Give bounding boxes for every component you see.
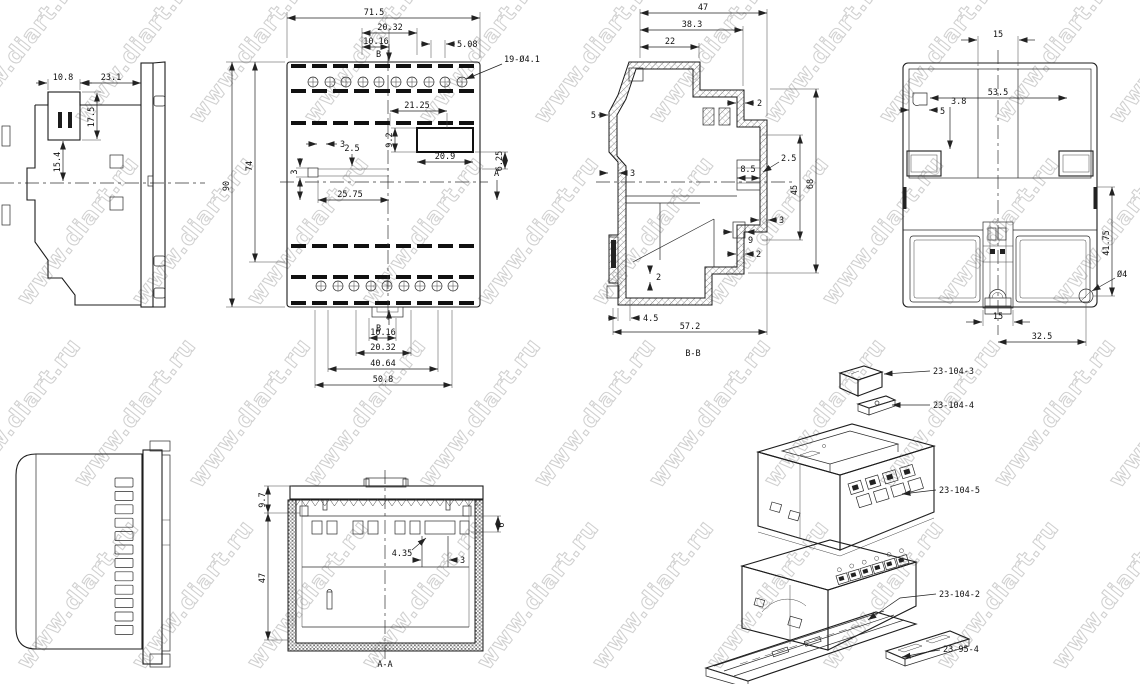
watermark-text: www.diart.ru: [874, 334, 1006, 493]
watermark-text: www.diart.ru: [357, 152, 489, 311]
dim-label: 68: [806, 179, 816, 189]
watermark-text: www.diart.ru: [127, 152, 259, 311]
watermark-text: www.diart.ru: [472, 516, 604, 675]
hole-callout: Ø4: [1117, 269, 1127, 280]
dim-label: 17.5: [87, 107, 97, 127]
watermark-layer: www.diart.ruwww.diart.ruwww.diart.ruwww.…: [0, 0, 1140, 675]
dim-label: 2: [756, 250, 761, 260]
section-label-bb: B-B: [685, 349, 700, 359]
dim-label: 5.08: [457, 40, 477, 50]
part-callout: 23-104-2: [939, 590, 980, 600]
watermark-text: www.diart.ru: [587, 516, 719, 675]
engineering-drawing: www.diart.ruwww.diart.ruwww.diart.ruwww.…: [0, 0, 1140, 684]
display-window: [417, 128, 473, 152]
dim-label: 40.64: [370, 359, 396, 369]
dim-label: 4.35: [392, 549, 412, 559]
hole-callout: 19-Ø4.1: [504, 54, 540, 65]
dim-label: 20.9: [435, 152, 455, 162]
watermark-text: www.diart.ru: [184, 334, 316, 493]
dim-label: 9.2: [385, 132, 395, 147]
watermark-text: www.diart.ru: [127, 516, 259, 675]
dim-label: 15: [993, 30, 1003, 40]
watermark-text: www.diart.ru: [1047, 516, 1140, 675]
dim-label: 3: [460, 556, 465, 566]
dim-label: 50.8: [373, 375, 393, 385]
watermark-text: www.diart.ru: [759, 0, 891, 129]
watermark-text: www.diart.ru: [759, 334, 891, 493]
watermark-text: www.diart.ru: [414, 334, 546, 493]
watermark-text: www.diart.ru: [0, 334, 87, 493]
dim-label: 2: [757, 99, 762, 109]
dim-label: 4.5: [643, 314, 658, 324]
view-front: 71.5 20.32 10.16 5.08 19-Ø4.1 B B 21.25 …: [222, 8, 540, 388]
dim-label: 38.3: [682, 20, 702, 30]
dim-label: 2: [656, 273, 661, 283]
part-callout: 23-104-5: [939, 486, 980, 496]
dim-label: 23.1: [101, 73, 121, 83]
dim-label: 15.4: [53, 152, 63, 172]
dim-label: 47: [698, 3, 708, 13]
watermark-text: www.diart.ru: [69, 334, 201, 493]
dim-label: 41.75: [1102, 230, 1112, 256]
dim-label: 5: [591, 111, 596, 121]
dim-label: 71.5: [364, 8, 384, 18]
dim-label: 47: [258, 573, 268, 583]
watermark-text: www.diart.ru: [1047, 152, 1140, 311]
terminal-screws-bottom: [316, 281, 458, 291]
dim-label: 6: [497, 522, 507, 527]
dim-label: 53.5: [988, 88, 1008, 98]
dim-label: 20.32: [370, 343, 396, 353]
watermark-text: www.diart.ru: [817, 152, 949, 311]
watermark-text: www.diart.ru: [989, 0, 1121, 129]
dim-label: 8.5: [740, 165, 755, 175]
dim-label: 22: [665, 37, 675, 47]
watermark-text: www.diart.ru: [12, 516, 144, 675]
dim-label: 25.75: [337, 190, 363, 200]
dim-label: 10.16: [363, 37, 389, 47]
watermark-text: www.diart.ru: [989, 334, 1121, 493]
part-callout: 23-104-4: [933, 401, 974, 411]
section-mark-b-top: B: [376, 50, 381, 60]
part-callout: 23-104-3: [933, 367, 974, 377]
watermark-text: www.diart.ru: [1104, 0, 1140, 129]
dim-label: 5: [940, 107, 945, 117]
dim-label: 3.8: [951, 97, 966, 107]
watermark-text: www.diart.ru: [644, 334, 776, 493]
dim-label: 3: [630, 169, 635, 179]
watermark-text: www.diart.ru: [299, 334, 431, 493]
watermark-text: www.diart.ru: [702, 152, 834, 311]
dim-label: 2.5: [781, 154, 796, 164]
dim-label: 10.16: [370, 328, 396, 338]
dim-label: 3: [290, 169, 300, 174]
watermark-text: www.diart.ru: [702, 516, 834, 675]
section-label-aa: A-A: [377, 660, 392, 670]
dim-label: 20.32: [377, 23, 403, 33]
dim-label: 21.25: [404, 101, 430, 111]
watermark-text: www.diart.ru: [529, 334, 661, 493]
dim-label: 3: [779, 216, 784, 226]
dim-label: 9.7: [258, 492, 268, 507]
drawing-canvas: www.diart.ruwww.diart.ruwww.diart.ruwww.…: [0, 0, 1140, 684]
watermark-text: www.diart.ru: [472, 152, 604, 311]
part-callout: 23-95-4: [943, 645, 979, 655]
dim-label: 57.2: [680, 322, 700, 332]
dim-label: 74: [245, 161, 255, 171]
dim-label: 15: [993, 312, 1003, 322]
section-mark-a: A: [494, 169, 499, 179]
watermark-text: www.diart.ru: [932, 152, 1064, 311]
dim-label: 9: [748, 236, 753, 246]
dim-label: 45: [790, 185, 800, 195]
dim-label: 10.8: [53, 73, 73, 83]
dim-label: 90: [222, 181, 232, 191]
watermark-text: www.diart.ru: [12, 152, 144, 311]
part-plate: [858, 396, 895, 415]
watermark-text: www.diart.ru: [242, 152, 374, 311]
dim-label: 2.5: [344, 144, 359, 154]
terminal-pockets: [312, 521, 469, 534]
dim-label: 32.5: [1032, 332, 1052, 342]
